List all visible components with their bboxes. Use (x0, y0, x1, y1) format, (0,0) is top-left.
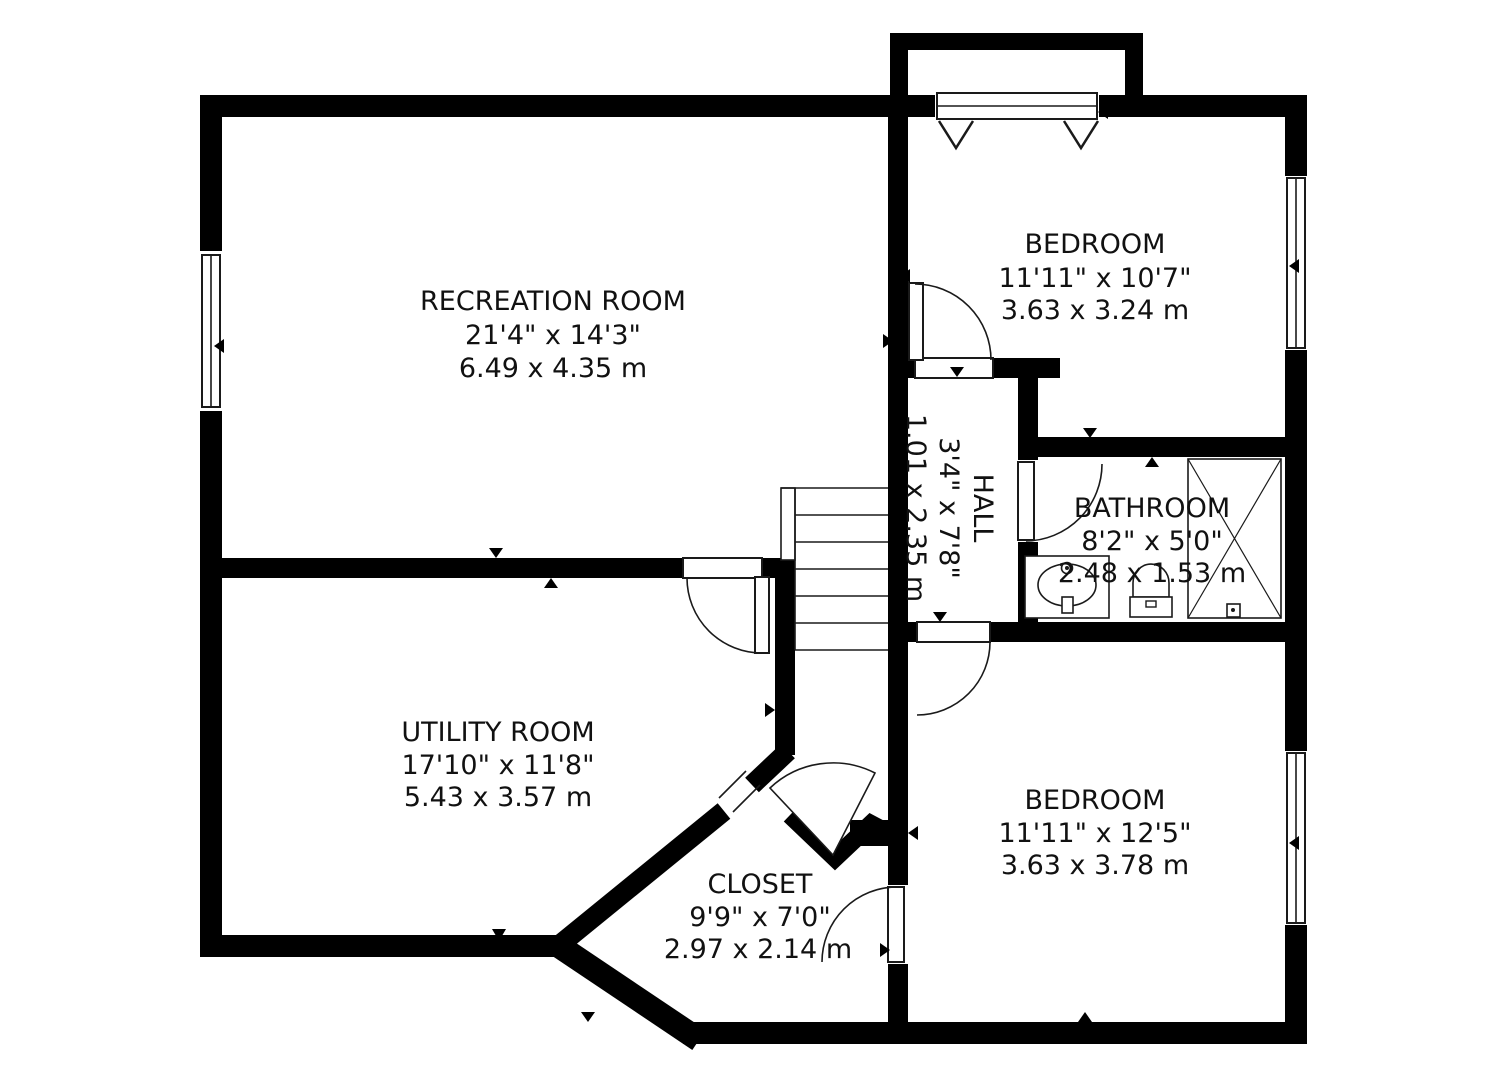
room-label-bedroom-top: BEDROOM 11'11" x 10'7" 3.63 x 3.24 m (998, 229, 1191, 326)
wall-bathroom-top (1038, 437, 1285, 457)
door-leaf (909, 283, 923, 360)
room-dimensions-imperial: 11'11" x 12'5" (998, 818, 1191, 849)
floorplan-page: RECREATION ROOM 21'4" x 14'3" 6.49 x 4.3… (0, 0, 1500, 1080)
room-dimensions-metric: 2.97 x 2.14 m (664, 934, 852, 965)
room-label-bathroom: BATHROOM 8'2" x 5'0" 2.48 x 1.53 m (1058, 493, 1246, 589)
wall-closet-stub (850, 820, 890, 846)
room-name: CLOSET (708, 869, 813, 900)
room-dimensions-metric: 2.48 x 1.53 m (1058, 558, 1246, 589)
room-label-utility-room: UTILITY ROOM 17'10" x 11'8" 5.43 x 3.57 … (401, 717, 594, 813)
room-dimensions-imperial: 8'2" x 5'0" (1081, 526, 1223, 557)
window-west-icon (198, 251, 224, 411)
wall-west (200, 95, 222, 957)
floorplan-canvas: RECREATION ROOM 21'4" x 14'3" 6.49 x 4.3… (0, 0, 1500, 1080)
door-leaf (1018, 462, 1034, 540)
room-dimensions-metric: 1.01 x 2.35 m (900, 414, 931, 602)
room-name: BEDROOM (1025, 785, 1166, 816)
room-dimensions-imperial: 11'11" x 10'7" (998, 263, 1191, 294)
stair-rail (781, 488, 795, 560)
wall-utility-bottom (200, 935, 566, 957)
wall-bumpout-top (890, 33, 1143, 50)
room-dimensions-imperial: 17'10" x 11'8" (401, 750, 594, 781)
wall-jog-vertical (1018, 358, 1038, 458)
room-dimensions-metric: 6.49 x 4.35 m (459, 353, 647, 384)
room-dimensions-metric: 3.63 x 3.78 m (1001, 850, 1189, 881)
room-dimensions-imperial: 21'4" x 14'3" (465, 320, 641, 351)
room-name: HALL (967, 474, 998, 543)
door-opening (917, 622, 990, 642)
door-leaf (888, 887, 904, 962)
room-dimensions-metric: 5.43 x 3.57 m (404, 782, 592, 813)
room-dimensions-imperial: 9'9" x 7'0" (689, 902, 831, 933)
wall-bumpout-right (1125, 33, 1143, 95)
room-name: BEDROOM (1025, 229, 1166, 260)
wall-bottom (683, 1022, 1307, 1044)
wall-stair-side (775, 560, 795, 755)
door-leaf (755, 577, 769, 653)
door-opening (683, 558, 762, 578)
wall-rec-utility (210, 558, 683, 578)
room-name: UTILITY ROOM (401, 717, 594, 748)
room-name: BATHROOM (1074, 493, 1230, 524)
window-east-bottom-icon (1283, 751, 1309, 925)
room-name: RECREATION ROOM (420, 286, 686, 317)
wall-top (200, 95, 1307, 117)
room-label-bedroom-bottom: BEDROOM 11'11" x 12'5" 3.63 x 3.78 m (998, 785, 1191, 881)
room-dimensions-imperial: 3'4" x 7'8" (933, 437, 964, 579)
room-dimensions-metric: 3.63 x 3.24 m (1001, 295, 1189, 326)
